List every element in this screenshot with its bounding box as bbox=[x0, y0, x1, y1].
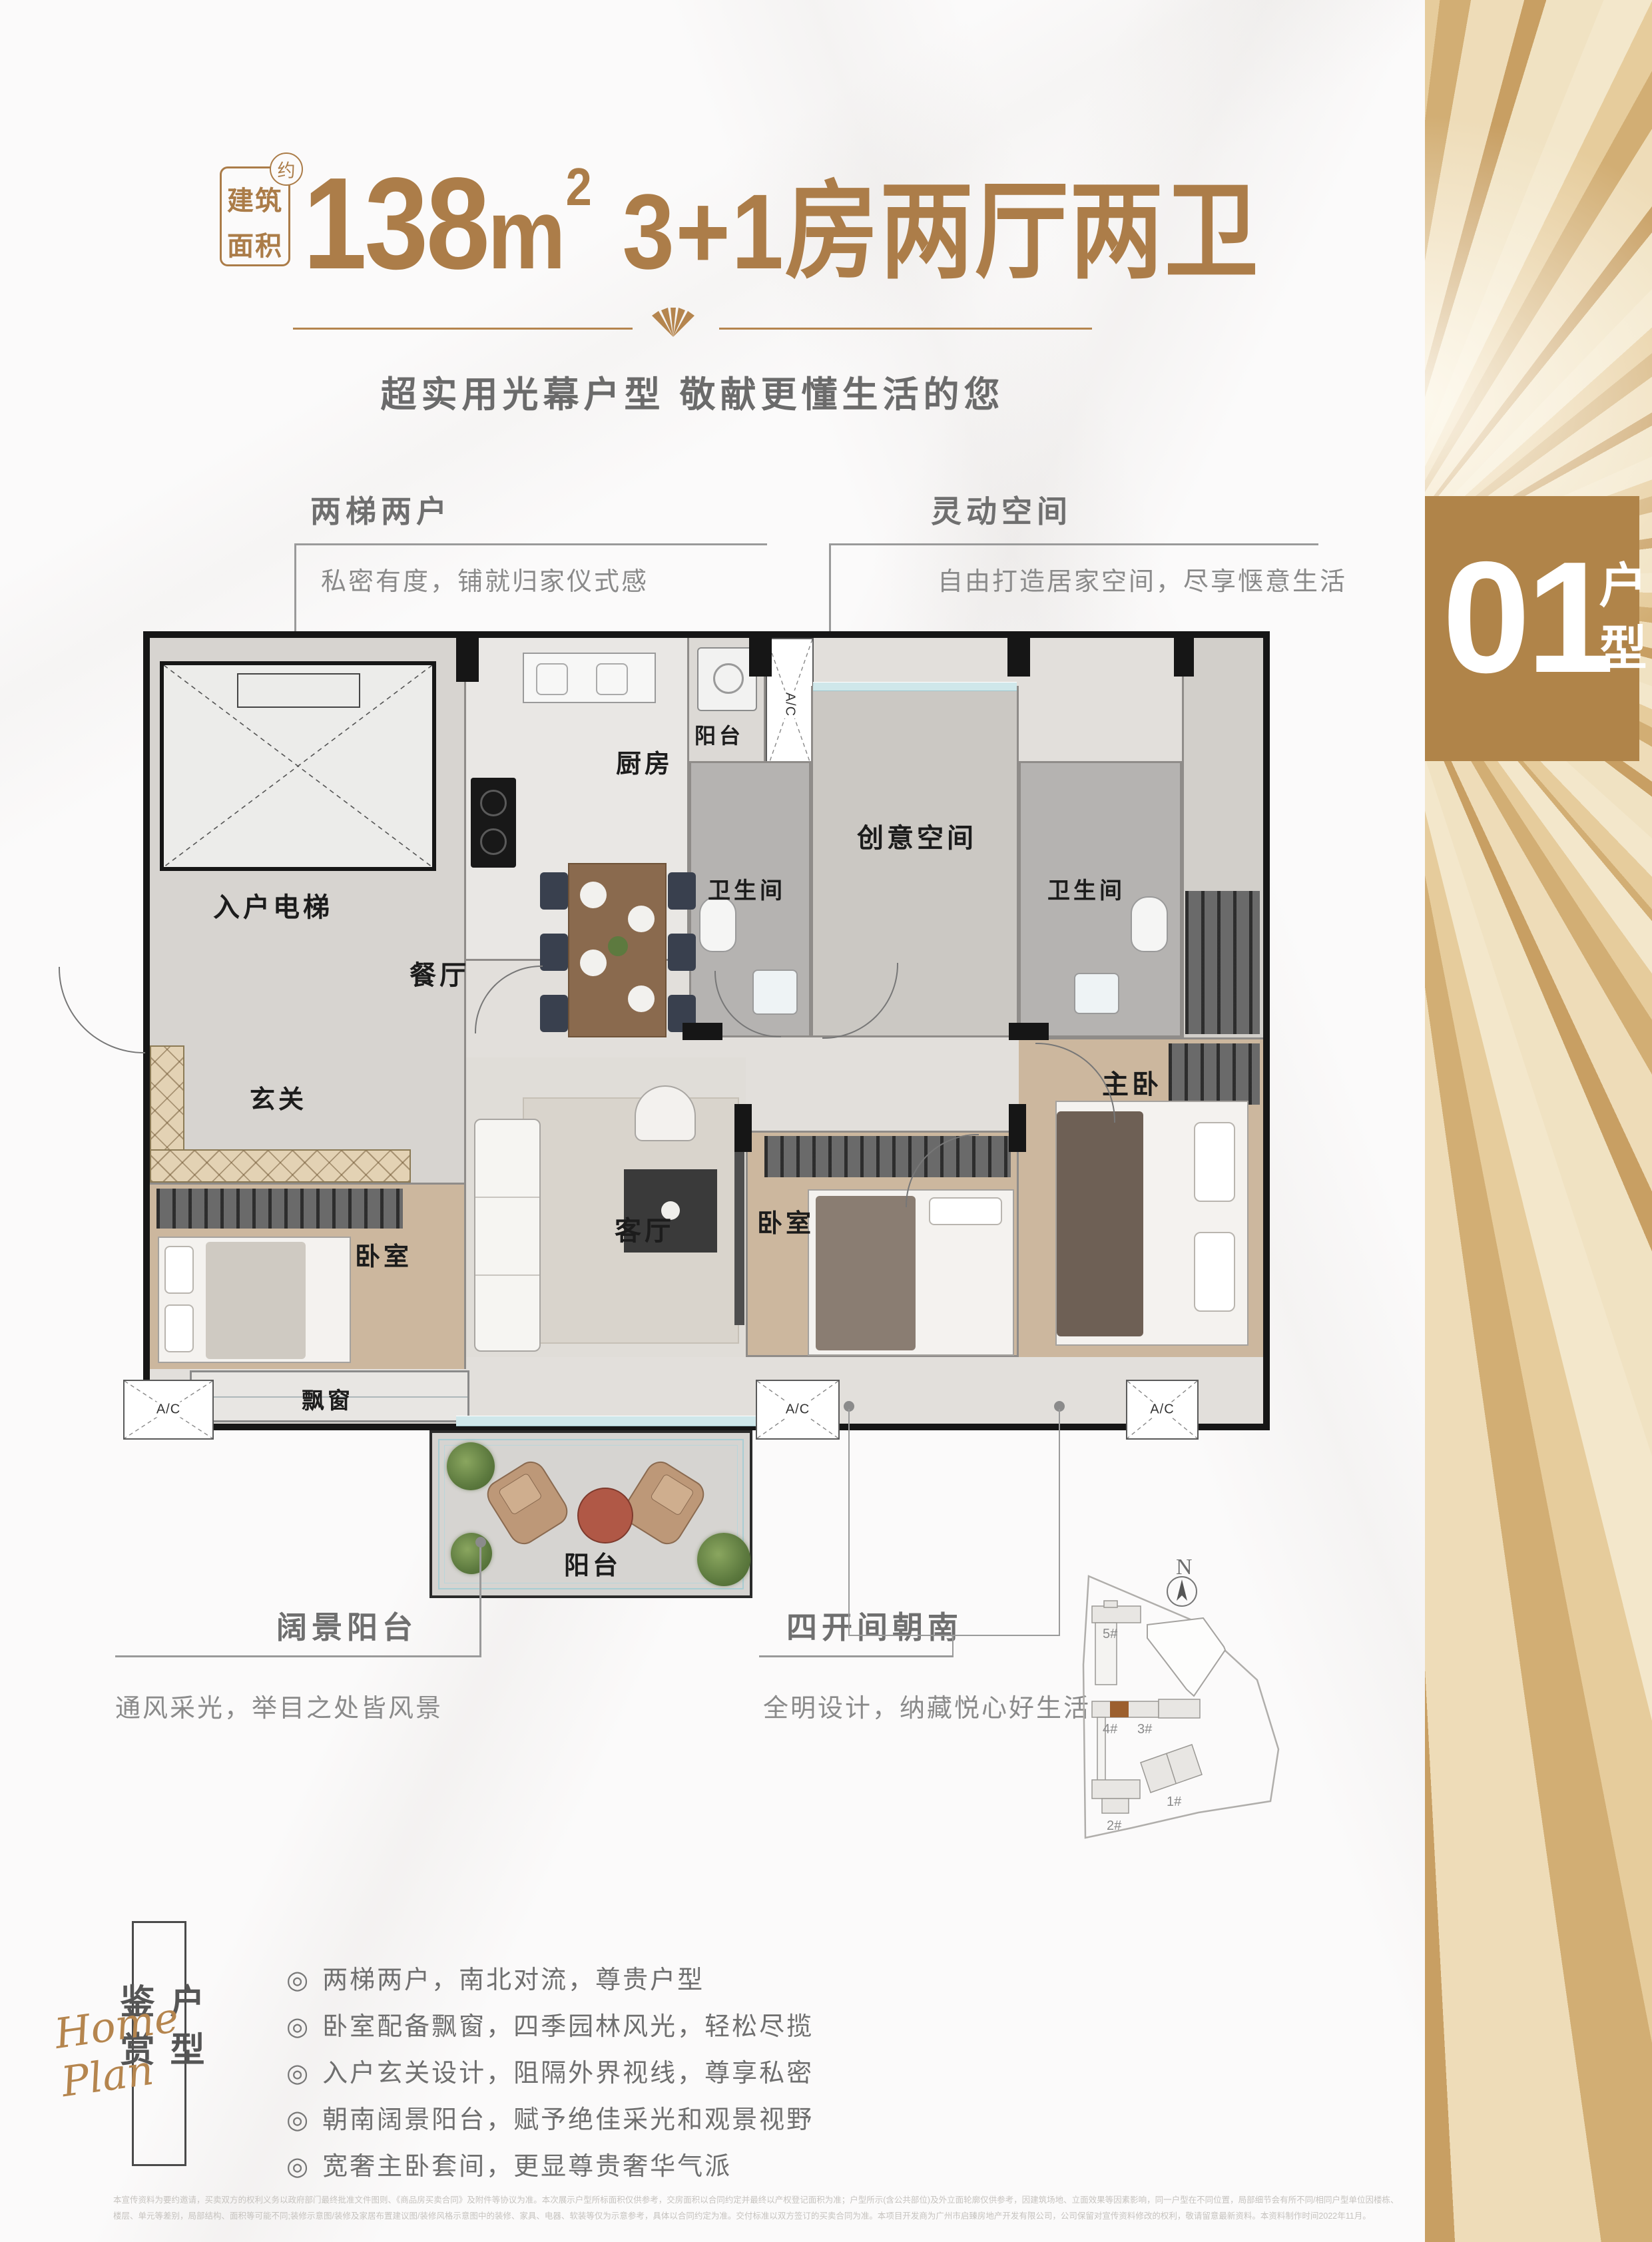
room-bedroom1 bbox=[150, 1183, 466, 1369]
feature-text: 两梯两户，南北对流，尊贵户型 bbox=[322, 1966, 704, 1994]
feature-item-3: ◎入户玄关设计，阻隔外界视线，尊享私密 bbox=[286, 2052, 814, 2089]
south-bracket-drop bbox=[952, 1635, 954, 1657]
plant-top-left bbox=[447, 1442, 495, 1490]
dining-chair-r1 bbox=[668, 872, 696, 910]
label-ac-north: A/C bbox=[782, 690, 798, 718]
label-foyer: 玄关 bbox=[250, 1079, 307, 1115]
area-badge-line1: 建筑 bbox=[222, 179, 288, 218]
bullet-icon: ◎ bbox=[286, 2013, 310, 2041]
sink-bowl-left bbox=[536, 663, 568, 695]
building-1-label: 1# bbox=[1167, 1795, 1182, 1809]
building-4-label: 4# bbox=[1103, 1722, 1118, 1737]
south-bracket-connector bbox=[848, 1635, 1060, 1636]
bedroom2-quilt bbox=[816, 1196, 916, 1350]
sofa-cushion-line-2 bbox=[475, 1274, 539, 1276]
wall-pier-2 bbox=[749, 638, 772, 677]
kitchen-sink bbox=[523, 653, 656, 703]
review-script: Home Plan bbox=[51, 1980, 282, 2107]
label-ac-sw: A/C bbox=[154, 1402, 182, 1418]
label-dining: 餐厅 bbox=[410, 954, 469, 992]
bedroom1-wardrobe bbox=[156, 1189, 403, 1229]
callout-view-balcony-rule bbox=[115, 1655, 481, 1657]
label-ac-mid: A/C bbox=[784, 1402, 812, 1418]
callout-flex-title: 灵动空间 bbox=[931, 487, 1072, 531]
ac-unit-southwest: A/C bbox=[123, 1380, 214, 1440]
area-approx-char: 约 bbox=[278, 156, 296, 182]
master-pillow-1 bbox=[1194, 1122, 1235, 1202]
bedroom1-bed bbox=[158, 1237, 351, 1363]
elevator-shaft bbox=[160, 661, 436, 871]
dining-table bbox=[568, 863, 667, 1037]
living-sofa bbox=[474, 1119, 541, 1352]
disclaimer-line2: 楼层、单元等差别，局部结构、面积等可能不同;装修示意图/装修及家居布置建议图/装… bbox=[113, 2208, 1415, 2224]
plant-right bbox=[697, 1533, 750, 1586]
floor-plan: 入户电梯 玄关 厨房 阳台 A/C bbox=[143, 631, 1270, 1430]
callout-south-title: 四开间朝南 bbox=[786, 1603, 963, 1647]
table-centerpiece-icon bbox=[608, 936, 628, 956]
ac-unit-south-mid: A/C bbox=[756, 1380, 840, 1440]
callout-view-balcony-leader bbox=[479, 1546, 481, 1655]
kitchen-stove bbox=[471, 778, 516, 868]
bullet-icon: ◎ bbox=[286, 2060, 310, 2088]
building-5-label: 5# bbox=[1103, 1627, 1118, 1641]
living-tv-console bbox=[734, 1132, 744, 1325]
area-badge-line2: 面积 bbox=[222, 224, 288, 263]
disclaimer: 本宣传资料为要约邀请，买卖双方的权利义务以政府部门最终批准文件图则、《商品房买卖… bbox=[113, 2192, 1415, 2224]
callout-elevator-rule bbox=[294, 543, 767, 545]
bedroom2-bed bbox=[808, 1189, 1014, 1356]
feature-text: 朝南阔景阳台，赋予绝佳采光和观景视野 bbox=[322, 2106, 814, 2134]
dining-chair-r2 bbox=[668, 934, 696, 971]
site-plan: N 5# 4# 3# 2# 1# bbox=[1065, 1545, 1295, 1864]
bedroom1-pillow-1 bbox=[164, 1246, 194, 1294]
callout-view-balcony-desc: 通风采光，举目之处皆风景 bbox=[115, 1687, 443, 1724]
master-bed bbox=[1055, 1101, 1248, 1346]
label-bathroom-right: 卫生间 bbox=[1047, 872, 1125, 905]
callout-elevator-title: 两梯两户 bbox=[310, 487, 451, 531]
living-south-window bbox=[456, 1416, 756, 1426]
door-arc-entry bbox=[59, 967, 145, 1053]
bedroom1-quilt bbox=[206, 1242, 306, 1359]
unit-tag-label: 户型 bbox=[1583, 560, 1652, 685]
plate-2 bbox=[628, 906, 655, 932]
feature-text: 宽奢主卧套间，更显尊贵奢华气派 bbox=[322, 2153, 732, 2181]
area-approx-circle: 约 bbox=[270, 152, 303, 186]
label-entrance-elevator: 入户电梯 bbox=[213, 886, 333, 924]
master-pillow-2 bbox=[1194, 1232, 1235, 1312]
feature-text: 卧室配备飘窗，四季园林风光，轻松尽揽 bbox=[322, 2013, 814, 2041]
highlighted-unit bbox=[1110, 1701, 1129, 1717]
site-amenity-outline bbox=[1147, 1618, 1225, 1696]
compass-needle-icon bbox=[1177, 1579, 1187, 1601]
wall-pier-6 bbox=[1009, 1023, 1049, 1040]
feature-text: 入户玄关设计，阻隔外界视线，尊享私密 bbox=[322, 2060, 814, 2088]
disclaimer-line1: 本宣传资料为要约邀请，买卖双方的权利义务以政府部门最终批准文件图则、《商品房买卖… bbox=[113, 2192, 1415, 2208]
master-wardrobe bbox=[1169, 1043, 1260, 1105]
label-bedroom2: 卧室 bbox=[757, 1203, 814, 1239]
south-bracket-v1 bbox=[848, 1409, 850, 1635]
header: 建筑 面积 约 138m23+1房两厅两卫 超实用光幕户型 敬献更懂生活的您 bbox=[0, 0, 1425, 466]
feature-item-5: ◎宽奢主卧套间，更显尊贵奢华气派 bbox=[286, 2145, 732, 2182]
bullet-icon: ◎ bbox=[286, 1966, 310, 1994]
building-3-label: 3# bbox=[1137, 1722, 1153, 1737]
callout-view-balcony-title: 阔景阳台 bbox=[276, 1603, 417, 1647]
building-2-label: 2# bbox=[1107, 1819, 1122, 1833]
label-living: 客厅 bbox=[615, 1209, 675, 1248]
feature-item-2: ◎卧室配备飘窗，四季园林风光，轻松尽揽 bbox=[286, 2006, 814, 2042]
label-bathroom-left: 卫生间 bbox=[708, 872, 786, 905]
callout-south-rule bbox=[759, 1655, 954, 1657]
compass-north-label: N bbox=[1176, 1555, 1193, 1579]
door-arc-kitchen bbox=[475, 966, 543, 1033]
wall-pier-7 bbox=[734, 1104, 752, 1152]
feature-item-4: ◎朝南阔景阳台，赋予绝佳采光和观景视野 bbox=[286, 2099, 814, 2135]
ac-unit-southeast: A/C bbox=[1126, 1380, 1199, 1440]
master-quilt bbox=[1057, 1111, 1143, 1336]
south-balcony: 阳台 bbox=[429, 1430, 752, 1598]
ac-platform-north: A/C bbox=[766, 638, 814, 770]
lounge-chair-right bbox=[618, 1456, 710, 1550]
feature-item-1: ◎两梯两户，南北对流，尊贵户型 bbox=[286, 1959, 704, 1996]
label-south-balcony: 阳台 bbox=[564, 1545, 621, 1581]
room-living bbox=[466, 1057, 746, 1357]
label-creative: 创意空间 bbox=[857, 816, 977, 855]
creative-north-window bbox=[813, 682, 1017, 691]
fan-petals bbox=[652, 308, 694, 337]
callout-flex-desc: 自由打造居家空间，尽享惬意生活 bbox=[938, 561, 1347, 597]
washer-drum-icon bbox=[713, 663, 744, 694]
building-1: 1# bbox=[1141, 1745, 1202, 1809]
title-layout-text: 3+1房两厅两卫 bbox=[623, 172, 1260, 291]
callout-view-balcony-dot bbox=[475, 1537, 486, 1547]
label-bay-window: 飘窗 bbox=[302, 1382, 354, 1415]
chair-pillow bbox=[498, 1472, 543, 1516]
wall-pier-5 bbox=[683, 1023, 722, 1040]
divider-right-line bbox=[719, 328, 1092, 330]
burner-1 bbox=[480, 790, 507, 816]
living-armchair bbox=[635, 1085, 696, 1141]
dining-chair-l2 bbox=[540, 934, 568, 971]
plant-bottom-left bbox=[451, 1533, 492, 1574]
burner-2 bbox=[480, 828, 507, 855]
gold-fan-strip bbox=[1425, 0, 1652, 2242]
title-area-unit: m bbox=[487, 178, 565, 290]
wall-pier-3 bbox=[1007, 638, 1030, 677]
divider-left-line bbox=[293, 328, 633, 330]
divider-fan-icon bbox=[643, 298, 704, 340]
title-area-sup: 2 bbox=[566, 157, 592, 216]
plate-3 bbox=[580, 950, 607, 976]
poster-page: 01 户型 建筑 面积 约 138m23+1房两厅两卫 超实用光幕户型 bbox=[0, 0, 1652, 2242]
lounge-chair-left bbox=[481, 1456, 573, 1550]
bullet-icon: ◎ bbox=[286, 2106, 310, 2134]
sink-bowl-right bbox=[596, 663, 628, 695]
dining-chair-l1 bbox=[540, 872, 568, 910]
south-bracket-v2 bbox=[1059, 1409, 1060, 1635]
subtitle: 超实用光幕户型 敬献更懂生活的您 bbox=[280, 365, 1105, 418]
wall-pier-1 bbox=[456, 638, 479, 682]
title-area-number: 138 bbox=[303, 150, 487, 296]
label-bedroom1: 卧室 bbox=[355, 1236, 412, 1272]
sofa-cushion-line-1 bbox=[475, 1197, 539, 1198]
balcony-table bbox=[577, 1488, 633, 1543]
callout-elevator-desc: 私密有度，铺就归家仪式感 bbox=[321, 561, 649, 597]
basin-right bbox=[1074, 973, 1119, 1014]
label-north-balcony: 阳台 bbox=[694, 719, 744, 750]
callout-flex-rule bbox=[829, 543, 1318, 545]
toilet-right bbox=[1131, 896, 1168, 952]
master-corridor-closet bbox=[1185, 891, 1260, 1034]
bullet-icon: ◎ bbox=[286, 2153, 310, 2181]
bedroom1-pillow-2 bbox=[164, 1304, 194, 1352]
label-ac-se: A/C bbox=[1148, 1402, 1176, 1418]
plate-1 bbox=[580, 882, 607, 908]
main-title: 138m23+1房两厅两卫 bbox=[303, 145, 1259, 300]
washing-machine bbox=[697, 647, 757, 711]
callout-south-desc: 全明设计，纳藏悦心好生活 bbox=[763, 1687, 1091, 1724]
foyer-closet-bottom bbox=[150, 1149, 411, 1183]
chair-pillow bbox=[650, 1473, 694, 1516]
building-5: 5# bbox=[1092, 1601, 1141, 1685]
elevator-car bbox=[237, 673, 360, 708]
wall-pier-4 bbox=[1174, 638, 1194, 677]
area-badge: 建筑 面积 约 bbox=[220, 166, 290, 266]
label-kitchen: 厨房 bbox=[616, 743, 673, 780]
unit-tag: 01 户型 bbox=[1425, 496, 1639, 761]
dining-chair-l3 bbox=[540, 995, 568, 1032]
wall-pier-8 bbox=[1009, 1104, 1026, 1152]
plate-4 bbox=[628, 985, 655, 1012]
building-2: 2# bbox=[1092, 1780, 1140, 1833]
